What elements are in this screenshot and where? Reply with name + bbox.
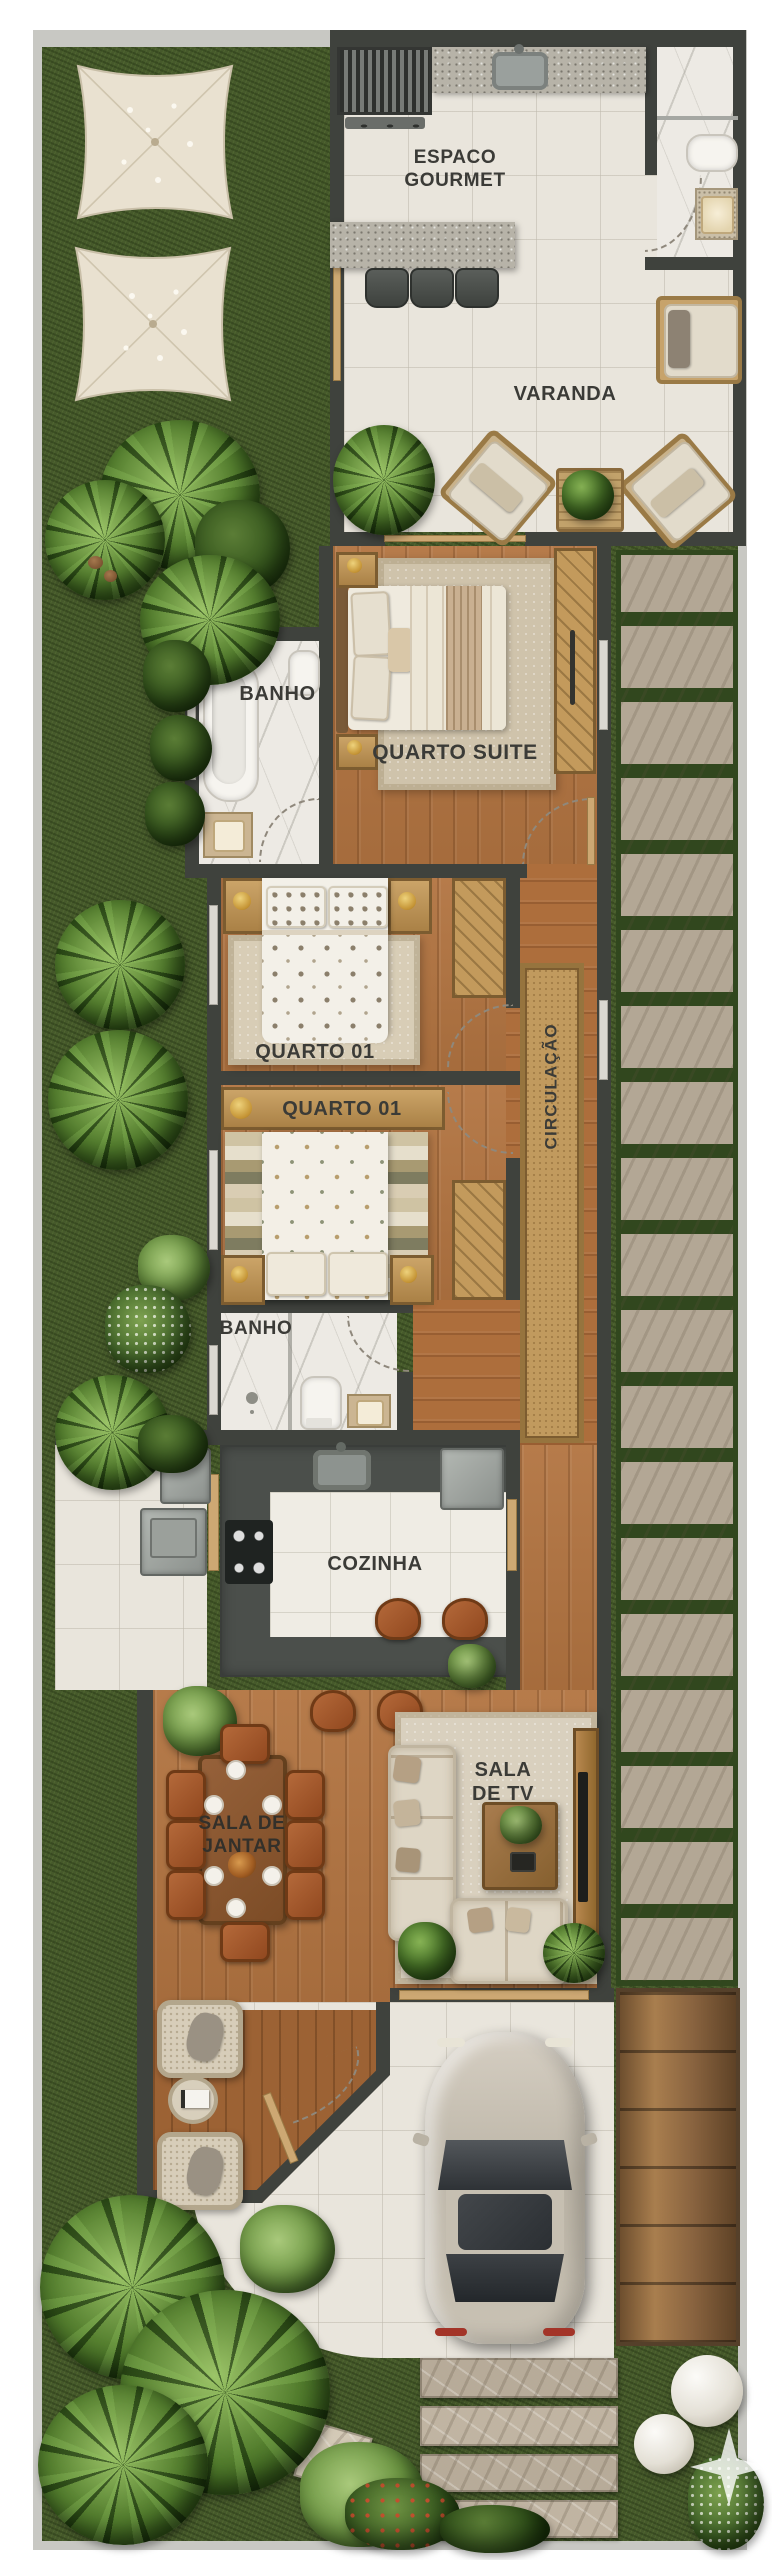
wall-lavabo-bottom <box>645 257 746 270</box>
suite-pillow-small <box>388 628 412 672</box>
label-sala-de-jantar-line2: JANTAR <box>202 1836 281 1857</box>
sofa-pillow-2 <box>393 1799 422 1828</box>
suite-bed-headboard <box>336 583 348 733</box>
decor-sphere-large <box>671 2355 743 2427</box>
washer-panel <box>150 1518 197 1558</box>
decor-sphere-small <box>634 2414 694 2474</box>
kitchen-sink <box>313 1450 371 1490</box>
label-banho-suite: BANHO <box>215 682 340 706</box>
bedroom2-shelf-lamp-icon <box>230 1097 252 1119</box>
tv-screen <box>578 1772 588 1902</box>
wall-bedroom1-right <box>506 878 520 1008</box>
wall-living-left <box>137 1690 153 2203</box>
floor-kitchen-side <box>520 1445 597 1690</box>
bedroom1-duvet <box>262 930 388 1043</box>
bar-stool-1 <box>365 268 409 308</box>
car-headlight-right <box>545 2038 573 2047</box>
lavabo-toilet <box>686 134 738 172</box>
suite-pillow-2 <box>350 655 391 721</box>
label-espaco-gourmet-line1: ESPACO <box>414 147 496 168</box>
car-headlight-left <box>437 2038 465 2047</box>
label-sala-de-jantar: SALA DE JANTAR <box>182 1812 302 1858</box>
fern-bottom-2 <box>440 2505 550 2553</box>
wall-porch-stub <box>376 2002 390 2075</box>
label-quarto-01-a: QUARTO 01 <box>235 1040 395 1064</box>
garden-pebble-1 <box>88 556 103 569</box>
garden-pebble-2 <box>104 570 117 582</box>
bush-left-2 <box>150 715 212 781</box>
label-sala-de-jantar-line1: SALA DE <box>199 1813 286 1834</box>
label-espaco-gourmet: ESPACO GOURMET <box>370 146 540 192</box>
car-sunroof <box>458 2194 552 2250</box>
fern-left-dark <box>138 1415 208 1473</box>
gourmet-sink-faucet-icon <box>514 44 524 54</box>
refrigerator <box>440 1448 504 1510</box>
kitchen-stool-1 <box>375 1598 421 1640</box>
glass-door-gourmet <box>334 250 340 380</box>
label-sala-de-tv-line1: SALA <box>475 1759 532 1781</box>
grill-knobs <box>345 117 425 129</box>
plate-6 <box>226 1898 246 1918</box>
wood-gate <box>616 1988 740 2346</box>
sparkle-icon <box>688 2426 770 2508</box>
window-hall-right <box>599 1000 608 1080</box>
sofa-pillow-1 <box>392 1754 421 1783</box>
window-bedroom2 <box>209 1150 218 1250</box>
kitchen-faucet-icon <box>336 1442 346 1452</box>
car <box>425 2032 585 2344</box>
label-sala-de-tv: SALA DE TV <box>443 1758 563 1807</box>
porch-chair-2 <box>157 2132 243 2210</box>
bedroom1-lamp-2-icon <box>398 892 416 910</box>
suite-lamp-1-icon <box>347 558 362 573</box>
label-varanda: VARANDA <box>490 382 640 406</box>
palm-bottom-3 <box>38 2385 208 2545</box>
label-espaco-gourmet-line2: GOURMET <box>404 170 505 191</box>
window-bedroom1 <box>209 905 218 1005</box>
window-suite-right <box>599 640 608 730</box>
car-windshield <box>438 2140 572 2190</box>
door-leaf-suite <box>588 798 594 864</box>
bedroom2-lamp-2-icon <box>400 1266 417 1283</box>
plate-5 <box>262 1866 282 1886</box>
wall-varanda-bottom-b <box>525 532 746 546</box>
label-circulacao: CIRCULAÇÃO <box>542 1006 563 1166</box>
wall-bedroom2-right <box>506 1158 520 1300</box>
bedroom2-pillow-1 <box>266 1252 326 1296</box>
kitchen-pass-window <box>508 1500 516 1570</box>
porch-chair-pillow <box>183 2144 226 2198</box>
lounge-pillow <box>668 310 690 368</box>
bedroom1-lamp-1-icon <box>233 892 251 910</box>
dining-chair-left-3 <box>166 1870 206 1920</box>
social-vanity-sink <box>356 1400 384 1426</box>
lavabo-sink <box>701 196 734 234</box>
stepping-slab-1 <box>420 2358 618 2398</box>
coffee-table-plant <box>500 1806 542 1844</box>
coffee-table-tv-remote <box>510 1852 536 1872</box>
wall-suite-left <box>319 546 333 877</box>
car-taillight-left <box>435 2328 467 2336</box>
gourmet-sink <box>492 52 548 90</box>
porch-chair-pillow <box>183 2010 228 2065</box>
bush-left-1 <box>143 640 211 712</box>
kitchen-stool-2 <box>442 1598 488 1640</box>
leafy-porch <box>240 2205 335 2293</box>
tv-rug-plant-2 <box>543 1923 605 1983</box>
bush-left-3 <box>145 782 205 846</box>
wall-lavabo-left <box>645 47 657 175</box>
porch-chair-1 <box>157 2000 243 2078</box>
dining-chair-bottom <box>220 1922 270 1962</box>
bedroom1-pillow-2 <box>328 886 388 928</box>
suite-vanity-sink <box>213 820 245 852</box>
plate-4 <box>204 1866 224 1886</box>
suite-pillow-1 <box>350 591 391 657</box>
loveseat-pillow-1 <box>466 1906 493 1933</box>
bar-stool-3 <box>455 268 499 308</box>
cooktop <box>225 1520 273 1584</box>
floor-plan-image: ESPACO GOURMET VARANDA BANHO QUARTO SUIT… <box>0 0 772 2560</box>
boundary-wall-top <box>33 30 333 47</box>
suite-throw-blanket <box>446 586 482 730</box>
kitchen-stool-3 <box>310 1690 356 1732</box>
palm-topleft-2 <box>45 480 165 600</box>
bar-island <box>330 222 515 268</box>
bedroom2-lamp-1-icon <box>231 1266 248 1283</box>
grill <box>337 47 432 115</box>
window-banho-social <box>209 1345 218 1415</box>
palm-left-1 <box>55 900 185 1030</box>
lounge-chair <box>656 296 742 384</box>
sofa-pillow-3 <box>395 1847 421 1873</box>
wall-suite-bottom <box>185 864 527 878</box>
label-cozinha: COZINHA <box>300 1552 450 1576</box>
palm-left-2 <box>48 1030 188 1170</box>
dining-chair-top <box>220 1724 270 1764</box>
bush-left-speckled <box>105 1285 191 1373</box>
shade-sail-2 <box>68 240 238 408</box>
car-rear-window <box>446 2254 564 2302</box>
wall-banho-social-right <box>397 1372 413 1430</box>
shade-sail-1 <box>70 58 240 226</box>
lavabo-shower-divider <box>657 116 738 120</box>
tv-rug-plant-1 <box>398 1922 456 1980</box>
suite-wardrobe <box>554 548 596 774</box>
wall-between-bedrooms <box>207 1071 520 1085</box>
label-quarto-01-b: QUARTO 01 <box>262 1097 422 1121</box>
stepping-slab-3 <box>420 2454 618 2492</box>
suite-wardrobe-handle <box>570 630 575 705</box>
kitchen-counter-plant <box>448 1644 496 1688</box>
bedroom2-wardrobe <box>452 1180 506 1300</box>
plate-1 <box>226 1760 246 1780</box>
wall-top <box>330 30 746 47</box>
wall-right-main <box>597 546 611 1990</box>
dining-chair-right-3 <box>285 1870 325 1920</box>
label-quarto-suite: QUARTO SUITE <box>360 740 550 766</box>
bar-stool-2 <box>410 268 454 308</box>
label-sala-de-tv-line2: DE TV <box>472 1783 534 1805</box>
loveseat-pillow-2 <box>505 1907 532 1934</box>
shower-head-icon <box>246 1392 258 1404</box>
label-banho-social: BANHO <box>196 1317 316 1340</box>
varanda-palm <box>333 425 435 535</box>
side-stone-path <box>616 550 738 1986</box>
bedroom2-pillow-2 <box>328 1252 388 1296</box>
wall-right-top-block <box>733 30 746 546</box>
varanda-table-plant <box>562 470 614 520</box>
car-taillight-right <box>543 2328 575 2336</box>
bedroom1-wardrobe <box>452 878 506 998</box>
stepping-slab-2 <box>420 2406 618 2446</box>
bedroom1-pillow-1 <box>266 886 326 928</box>
porch-book <box>181 2090 209 2108</box>
social-toilet-tank <box>306 1418 332 1427</box>
garage-sliding-door <box>400 1991 588 1999</box>
